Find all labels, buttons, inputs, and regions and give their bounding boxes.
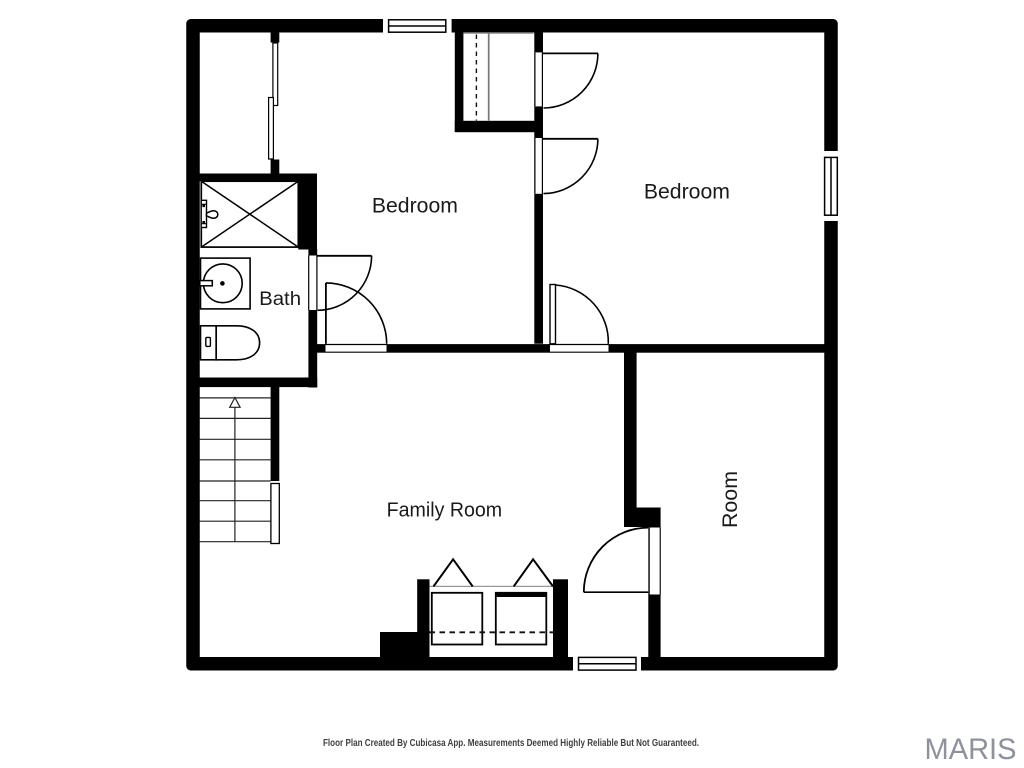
svg-text:Room: Room — [719, 471, 742, 528]
svg-text:Bath: Bath — [259, 289, 301, 310]
svg-text:Bedroom: Bedroom — [644, 181, 730, 204]
svg-text:Family Room: Family Room — [387, 500, 503, 522]
svg-text:Bedroom: Bedroom — [372, 194, 458, 217]
svg-text:Floor Plan Created By Cubicasa: Floor Plan Created By Cubicasa App. Meas… — [323, 738, 699, 749]
svg-text:MARIS: MARIS — [925, 733, 1017, 766]
